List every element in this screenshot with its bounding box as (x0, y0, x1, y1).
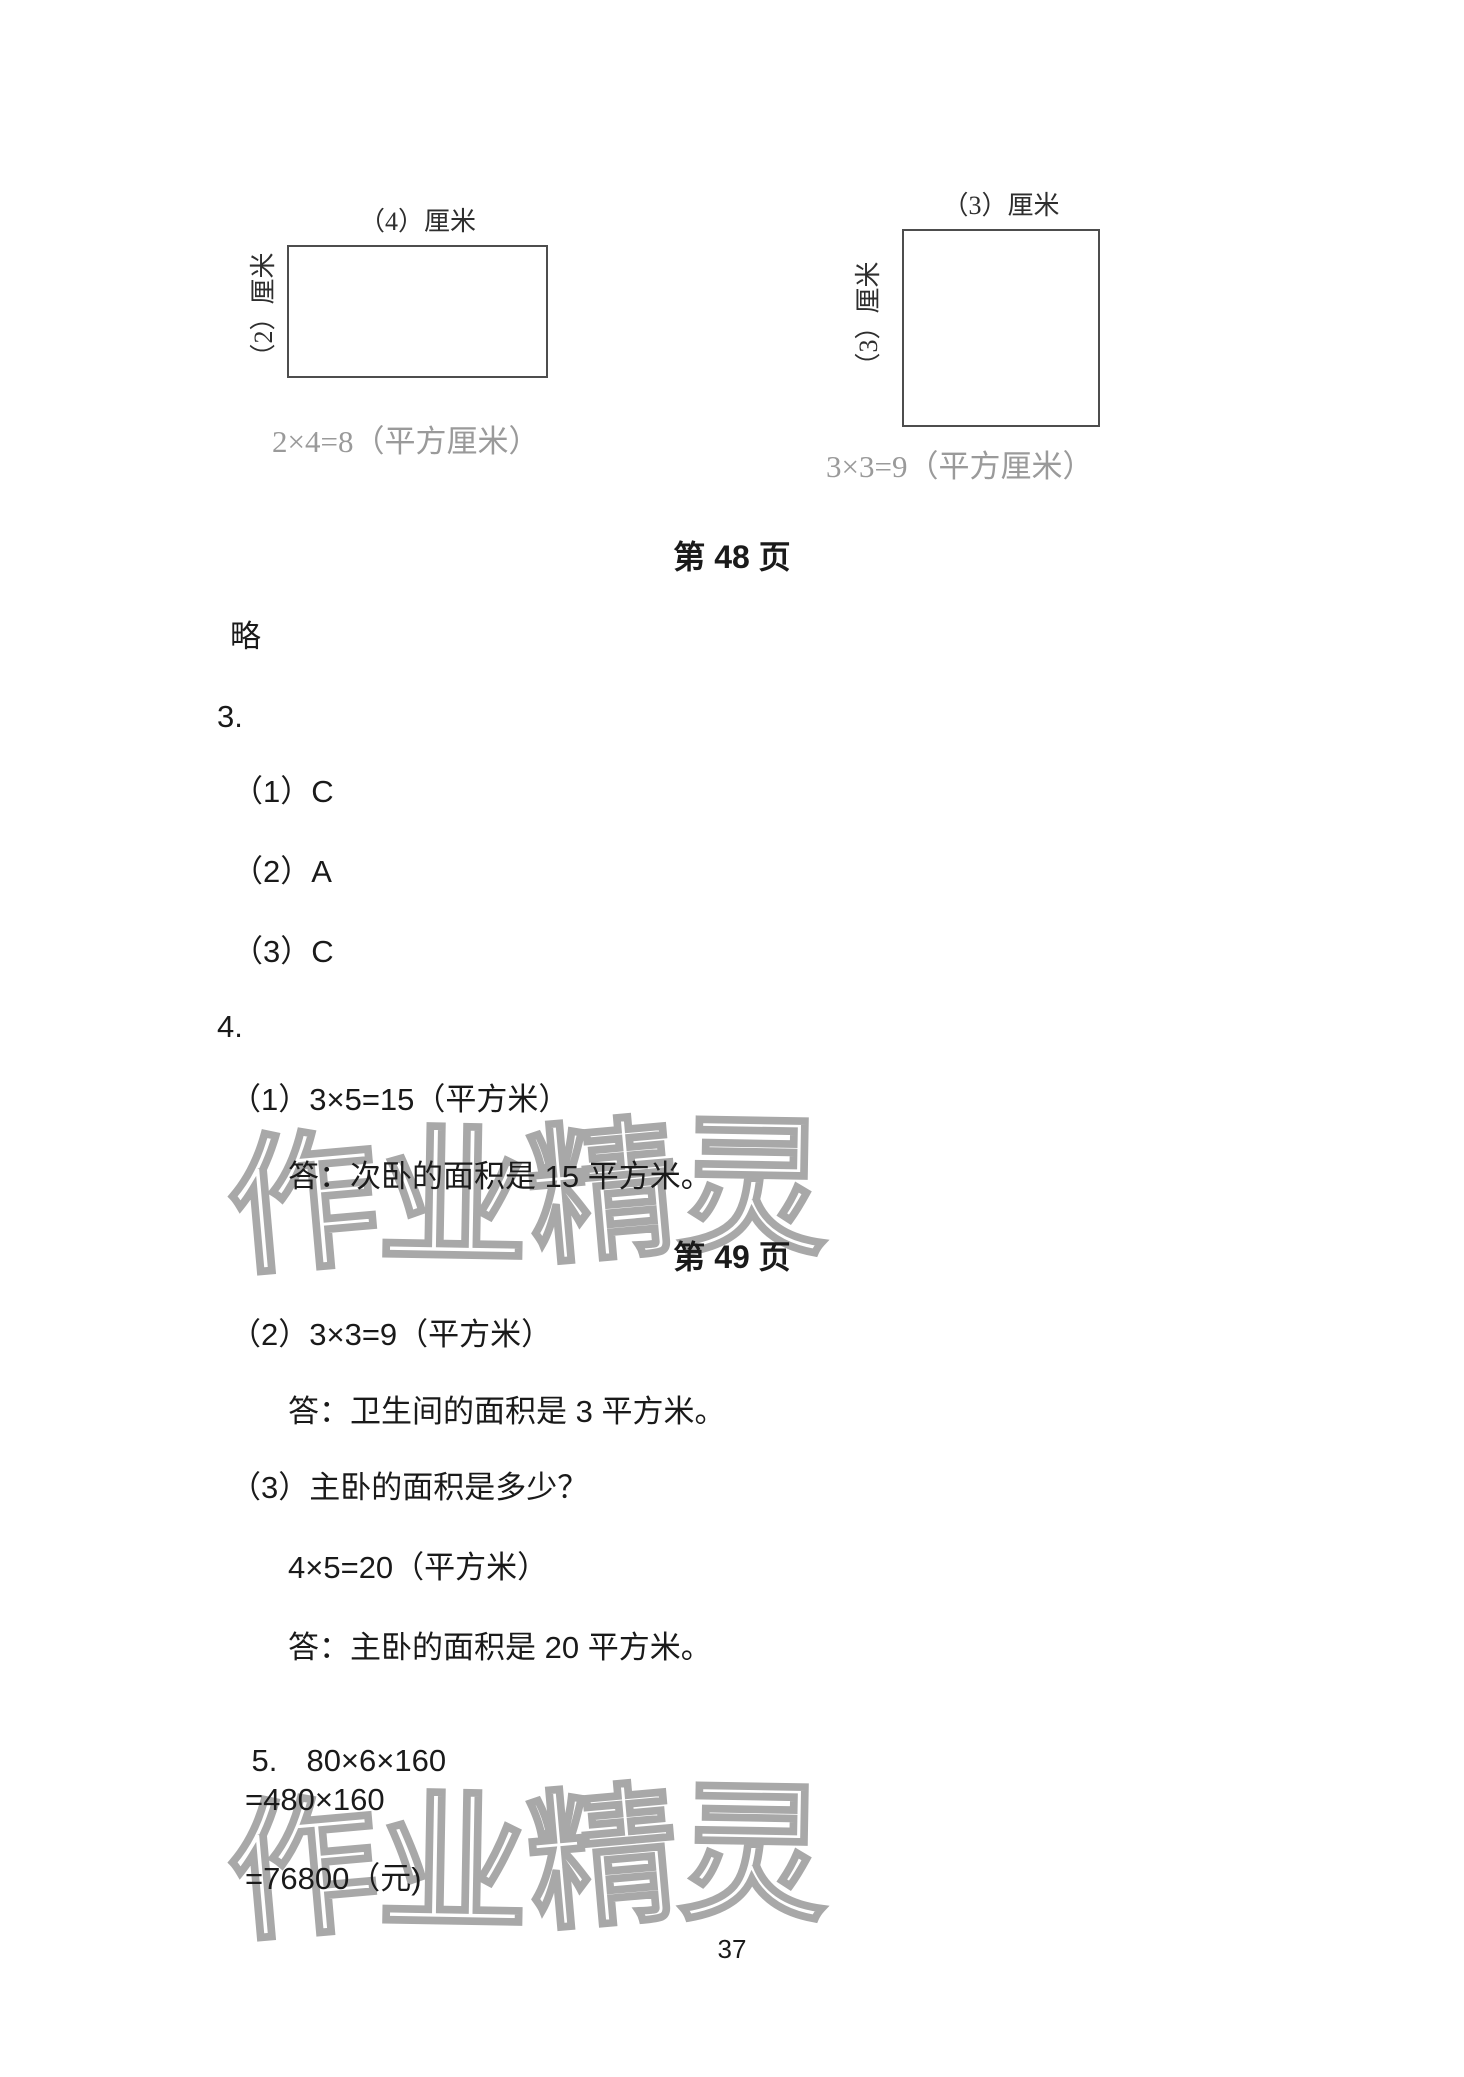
answer-3-3: （3）C (232, 933, 334, 971)
square-area-equation: 3×3=9（平方厘米） (826, 449, 1093, 485)
page-49-heading: 第 49 页 (0, 1238, 1464, 1276)
rect-side-dimension-label: （2）厘米 (246, 243, 282, 379)
answer-4-1-sentence: 答：次卧的面积是 15 平方米。 (288, 1158, 712, 1196)
question-3-number: 3. (217, 698, 243, 736)
page-number: 37 (0, 1934, 1464, 1964)
answer-key-page: 作业精灵 作业精灵 （4）厘米 （2）厘米 2×4=8（平方厘米） （3）厘米 … (0, 0, 1464, 2077)
square-side-dimension-label: （3）厘米 (851, 252, 887, 388)
answer-4-2-sentence: 答：卫生间的面积是 3 平方米。 (288, 1393, 725, 1431)
answer-3-1: （1）C (232, 773, 334, 811)
answer-5-step2: =76800（元) (245, 1860, 422, 1898)
question-4-number: 4. (217, 1008, 243, 1046)
answer-5-expression: 80×6×160 (306, 1743, 446, 1778)
answer-3-2: （2）A (232, 853, 332, 891)
square-shape (902, 229, 1100, 427)
answer-4-3-question: （3）主卧的面积是多少？ (230, 1469, 588, 1507)
rect-area-equation: 2×4=8（平方厘米） (272, 424, 539, 460)
question-5-number: 5. (251, 1742, 306, 1780)
answer-4-1-work: （1）3×5=15（平方米） (230, 1081, 569, 1119)
answer-4-3-sentence: 答：主卧的面积是 20 平方米。 (288, 1629, 712, 1667)
answer-4-3-work: 4×5=20（平方米） (288, 1549, 548, 1587)
rect-top-dimension-label: （4）厘米 (287, 204, 548, 240)
rectangle-shape (287, 245, 548, 378)
answer-skip: 略 (230, 618, 261, 656)
answer-5-step1: =480×160 (245, 1781, 385, 1819)
page-48-heading: 第 48 页 (0, 538, 1464, 576)
answer-4-2-work: （2）3×3=9（平方米） (230, 1316, 552, 1354)
square-top-dimension-label: （3）厘米 (902, 188, 1100, 224)
